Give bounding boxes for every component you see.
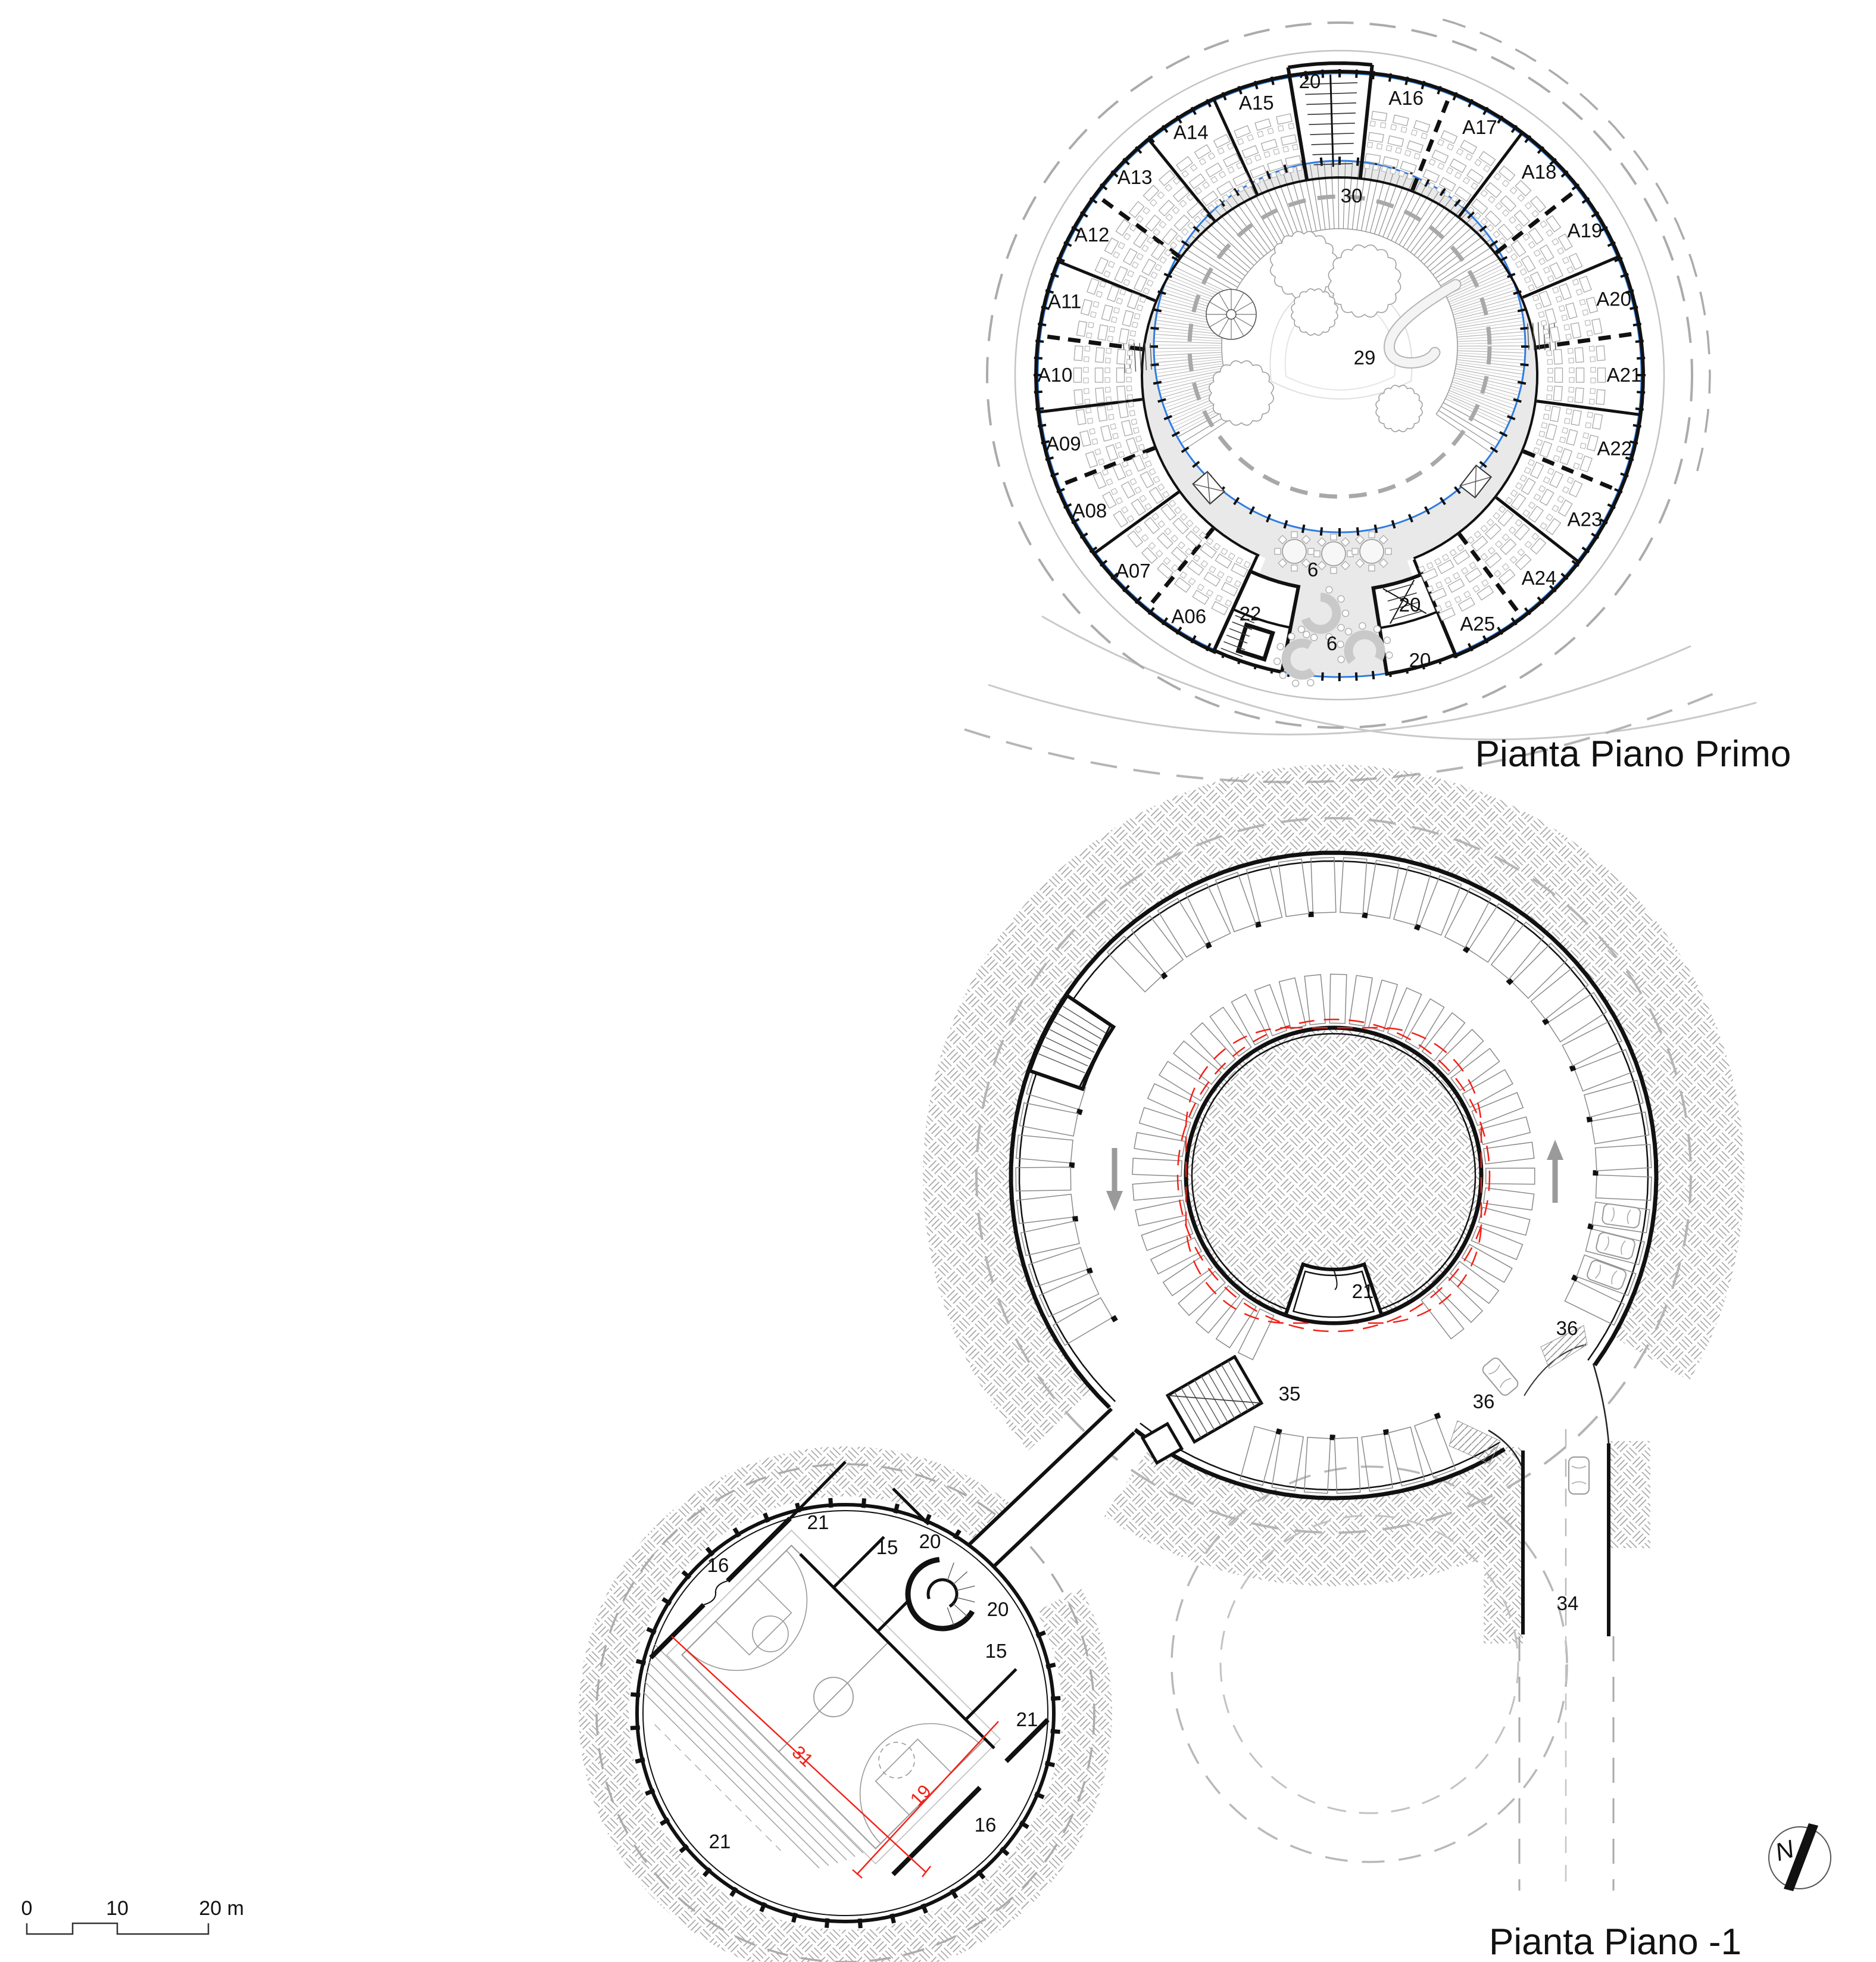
desk-icon bbox=[1571, 410, 1581, 426]
desk-icon bbox=[1189, 174, 1205, 189]
desk-icon bbox=[1566, 303, 1577, 319]
desk-icon bbox=[1596, 346, 1605, 361]
desk-icon bbox=[1116, 219, 1130, 235]
classroom-label: A10 bbox=[1038, 364, 1073, 386]
desk-icon bbox=[1571, 323, 1581, 338]
desk-icon bbox=[1546, 519, 1560, 535]
classroom-label: A13 bbox=[1118, 166, 1153, 188]
desk-icon bbox=[1511, 241, 1525, 257]
area-label: 36 bbox=[1556, 1317, 1578, 1339]
desk-icon bbox=[1162, 229, 1177, 245]
desk-icon bbox=[1174, 215, 1190, 230]
floor-plan-drawing: N Pianta Piano Primo Pianta Piano -1 010… bbox=[0, 0, 1876, 1962]
classroom-label: A12 bbox=[1075, 224, 1110, 246]
plan-first-floor bbox=[964, 17, 1756, 782]
desk-icon bbox=[1187, 560, 1203, 575]
desk-icon bbox=[1575, 348, 1584, 363]
desk-icon bbox=[1500, 539, 1516, 554]
classroom-label: A08 bbox=[1072, 500, 1107, 522]
classroom-label: A17 bbox=[1462, 116, 1497, 138]
area-label: 20 bbox=[987, 1598, 1009, 1620]
desk-icon bbox=[1365, 154, 1381, 163]
classroom-label: A09 bbox=[1046, 433, 1081, 455]
car-icon bbox=[1595, 1231, 1635, 1260]
desk-icon bbox=[1173, 186, 1190, 202]
desk-icon bbox=[1515, 210, 1530, 226]
scale-label: 10 bbox=[106, 1897, 129, 1920]
desk-icon bbox=[1200, 543, 1216, 558]
desk-icon bbox=[1131, 499, 1145, 515]
desk-icon bbox=[1175, 578, 1191, 592]
desk-icon bbox=[1095, 348, 1104, 363]
desk-icon bbox=[1553, 350, 1562, 364]
scale-bar bbox=[27, 1923, 208, 1934]
desk-icon bbox=[1592, 319, 1602, 334]
desk-icon bbox=[1281, 135, 1297, 145]
desk-icon bbox=[1545, 308, 1556, 325]
desk-icon bbox=[1593, 414, 1603, 429]
desk-icon bbox=[1193, 590, 1209, 604]
classroom-label: A18 bbox=[1522, 161, 1557, 183]
desk-icon bbox=[1186, 531, 1202, 547]
desk-icon bbox=[1531, 538, 1546, 554]
desk-icon bbox=[1553, 386, 1562, 401]
desk-icon bbox=[1498, 510, 1513, 526]
plan1-title: Pianta Piano Primo bbox=[1475, 734, 1791, 775]
desk-icon bbox=[1098, 325, 1108, 340]
classroom-label: A25 bbox=[1460, 613, 1495, 635]
desk-icon bbox=[1467, 169, 1483, 183]
desk-icon bbox=[1472, 536, 1488, 551]
classroom-label: A20 bbox=[1596, 288, 1631, 310]
desk-icon bbox=[1460, 140, 1477, 154]
scale-bar-labels: 01020 m bbox=[21, 1897, 244, 1920]
desk-icon bbox=[1117, 386, 1126, 401]
desk-icon bbox=[1485, 182, 1502, 197]
area-label: 35 bbox=[1279, 1383, 1301, 1405]
area-label: 30 bbox=[1341, 185, 1363, 207]
desk-icon bbox=[1550, 327, 1560, 342]
desk-icon bbox=[1499, 166, 1515, 181]
area-label: 21 bbox=[1352, 1280, 1374, 1302]
desk-icon bbox=[1176, 157, 1193, 171]
desk-icon bbox=[1546, 424, 1557, 440]
desk-icon bbox=[1095, 388, 1104, 403]
desk-icon bbox=[1081, 300, 1092, 316]
desk-icon bbox=[1117, 368, 1125, 382]
desk-icon bbox=[1122, 420, 1132, 436]
north-letter: N bbox=[1772, 1835, 1797, 1867]
area-label: 6 bbox=[1307, 559, 1318, 581]
scale-label: 20 m bbox=[199, 1897, 244, 1920]
car-icon bbox=[1586, 1259, 1628, 1290]
desk-icon bbox=[1161, 504, 1176, 520]
desk-icon bbox=[1157, 563, 1173, 579]
classroom-label: A21 bbox=[1607, 364, 1642, 386]
desk-icon bbox=[1528, 506, 1543, 522]
desk-icon bbox=[1144, 517, 1159, 534]
desk-icon bbox=[1262, 139, 1278, 151]
desk-icon bbox=[1074, 368, 1082, 382]
desk-icon bbox=[1393, 115, 1409, 126]
desk-icon bbox=[1122, 310, 1134, 326]
desk-icon bbox=[1157, 533, 1173, 548]
desk-icon bbox=[1575, 388, 1584, 403]
desk-icon bbox=[1097, 406, 1107, 422]
desk-icon bbox=[1465, 568, 1481, 582]
desk-icon bbox=[1276, 114, 1292, 124]
area-label: 21 bbox=[807, 1511, 829, 1533]
desk-icon bbox=[1134, 232, 1148, 248]
desk-icon bbox=[1117, 350, 1126, 364]
area-label: 16 bbox=[975, 1814, 997, 1836]
desk-icon bbox=[1555, 368, 1563, 382]
area-label: 16 bbox=[707, 1554, 729, 1576]
car-icon bbox=[1602, 1203, 1641, 1228]
desk-icon bbox=[1511, 494, 1525, 510]
north-arrow: N bbox=[1769, 1823, 1831, 1891]
drawing-sheet: N Pianta Piano Primo Pianta Piano -1 010… bbox=[0, 0, 1876, 1962]
area-label: 21 bbox=[1016, 1708, 1038, 1730]
classroom-label: A19 bbox=[1567, 219, 1602, 241]
classroom-label: A11 bbox=[1048, 290, 1081, 312]
desk-icon bbox=[1485, 523, 1501, 539]
desk-icon bbox=[1119, 329, 1129, 344]
desk-icon bbox=[1194, 145, 1210, 159]
desk-icon bbox=[1145, 215, 1160, 231]
classroom-label: A14 bbox=[1173, 121, 1209, 143]
desk-icon bbox=[1173, 518, 1188, 534]
desk-icon bbox=[1128, 531, 1143, 547]
courtyard-garden bbox=[1206, 232, 1456, 432]
classroom-label: A06 bbox=[1171, 605, 1206, 627]
desk-icon bbox=[1076, 409, 1086, 425]
desk-icon bbox=[1498, 224, 1513, 241]
desk-icon bbox=[1076, 321, 1087, 336]
desk-icon bbox=[1074, 346, 1083, 361]
bridge-stair-room bbox=[1168, 1357, 1262, 1442]
desk-icon bbox=[1531, 196, 1546, 213]
desk-icon bbox=[1566, 429, 1578, 445]
desk-icon bbox=[1101, 426, 1112, 441]
desk-icon bbox=[1388, 136, 1403, 146]
desk-icon bbox=[1159, 200, 1174, 216]
round-table-icon bbox=[1322, 542, 1346, 566]
desk-icon bbox=[1485, 553, 1502, 567]
round-table-icon bbox=[1282, 539, 1306, 563]
classroom-label: A07 bbox=[1116, 560, 1151, 582]
desk-icon bbox=[1101, 305, 1113, 321]
desk-icon bbox=[1546, 216, 1560, 232]
classroom-label: A15 bbox=[1239, 92, 1274, 114]
desk-icon bbox=[1485, 211, 1501, 226]
plan-basement bbox=[579, 765, 1744, 1962]
desk-icon bbox=[1477, 586, 1493, 600]
classroom-label: A16 bbox=[1388, 87, 1424, 109]
desk-icon bbox=[1255, 119, 1271, 130]
area-label: 15 bbox=[985, 1640, 1007, 1662]
desk-icon bbox=[1528, 228, 1543, 244]
area-label: 20 bbox=[1299, 70, 1321, 92]
desk-icon bbox=[1472, 199, 1488, 214]
desk-icon bbox=[1368, 132, 1384, 142]
desk-icon bbox=[1129, 201, 1144, 217]
desk-icon bbox=[1577, 368, 1584, 382]
classroom-label: A23 bbox=[1567, 509, 1602, 531]
desk-icon bbox=[1500, 196, 1516, 211]
car-icon bbox=[1569, 1457, 1589, 1494]
desk-icon bbox=[1095, 368, 1103, 382]
desk-icon bbox=[1159, 170, 1175, 186]
area-label: 20 bbox=[1409, 649, 1431, 671]
desk-icon bbox=[1596, 389, 1605, 404]
scale-label: 0 bbox=[21, 1897, 33, 1920]
area-label: 21 bbox=[709, 1830, 731, 1852]
gym-spiral-stair bbox=[908, 1559, 977, 1629]
classroom-label: A22 bbox=[1597, 438, 1632, 460]
area-label: 6 bbox=[1326, 632, 1337, 654]
desk-icon bbox=[1479, 151, 1495, 166]
desk-icon bbox=[1113, 511, 1128, 527]
scale-bar-line bbox=[27, 1923, 208, 1934]
desk-icon bbox=[1118, 403, 1128, 418]
area-label: 20 bbox=[1399, 594, 1421, 616]
area-label: 20 bbox=[919, 1530, 941, 1552]
desk-icon bbox=[1074, 389, 1083, 404]
desk-icon bbox=[1372, 111, 1387, 121]
desk-icon bbox=[1499, 569, 1515, 584]
desk-icon bbox=[1598, 368, 1606, 382]
round-table-icon bbox=[1360, 539, 1384, 563]
area-label: 22 bbox=[1240, 603, 1262, 625]
classroom-label: A24 bbox=[1522, 567, 1557, 589]
spiral-stair-icon bbox=[1206, 289, 1256, 339]
desk-icon bbox=[1202, 191, 1218, 206]
area-label: 15 bbox=[876, 1536, 898, 1558]
plan2-title: Pianta Piano -1 bbox=[1489, 1922, 1741, 1962]
desk-icon bbox=[1550, 406, 1560, 422]
area-label: 29 bbox=[1354, 347, 1376, 369]
desk-icon bbox=[1080, 431, 1091, 446]
area-label: 34 bbox=[1557, 1592, 1579, 1614]
desk-icon bbox=[1515, 524, 1530, 540]
area-label: 36 bbox=[1473, 1390, 1495, 1412]
